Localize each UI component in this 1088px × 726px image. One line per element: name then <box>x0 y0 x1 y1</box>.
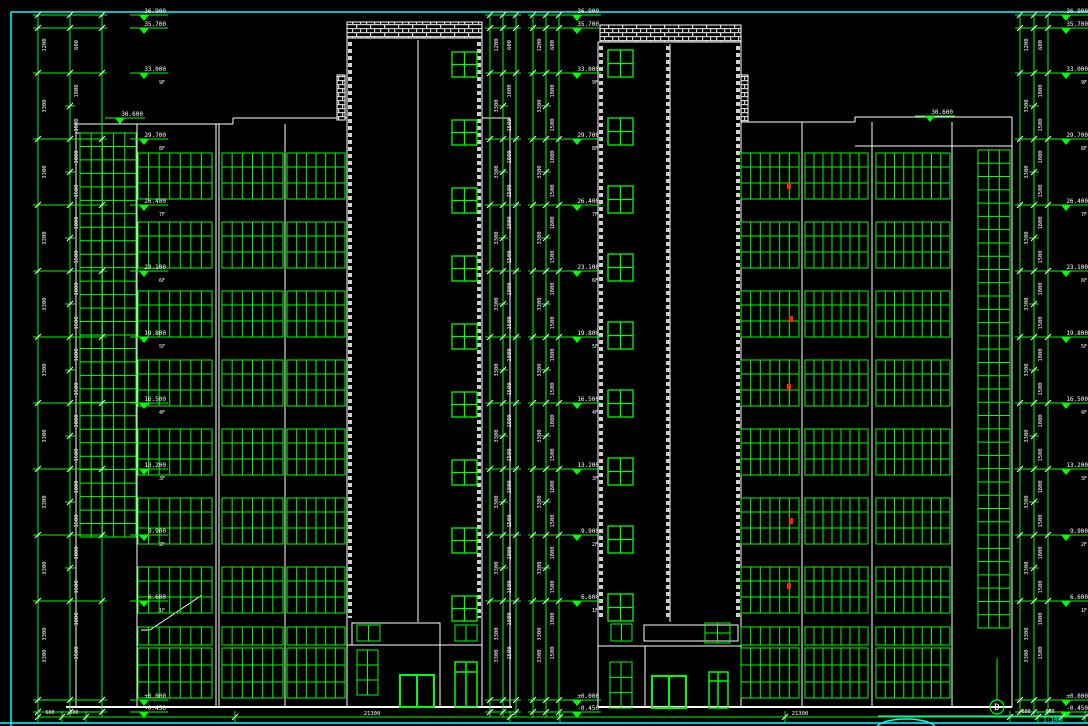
elevation-marker: 16.5004F <box>1052 396 1088 416</box>
svg-text:9F: 9F <box>159 80 165 86</box>
svg-text:9.900: 9.900 <box>581 528 599 535</box>
svg-text:1500: 1500 <box>74 316 80 329</box>
svg-text:1500: 1500 <box>550 448 556 461</box>
svg-text:4F: 4F <box>592 410 598 416</box>
svg-text:1500: 1500 <box>507 316 513 329</box>
svg-text:3300: 3300 <box>1024 649 1030 662</box>
svg-text:21300: 21300 <box>792 711 809 717</box>
svg-text:1800: 1800 <box>507 480 513 493</box>
svg-text:3300: 3300 <box>494 649 500 662</box>
svg-text:1800: 1800 <box>507 150 513 163</box>
dim-string-mid-right: 3300180015003300180015003300180015003300… <box>528 12 564 717</box>
svg-text:3300: 3300 <box>537 649 543 662</box>
svg-text:1200: 1200 <box>1024 38 1030 51</box>
svg-text:23.100: 23.100 <box>577 264 599 271</box>
svg-text:13.200: 13.200 <box>577 462 599 469</box>
svg-text:6.600: 6.600 <box>581 594 599 601</box>
svg-text:1800: 1800 <box>74 216 80 229</box>
elevation-marker: 36.900 <box>1052 8 1088 21</box>
svg-text:1500: 1500 <box>74 580 80 593</box>
svg-text:600: 600 <box>550 40 556 50</box>
elevation-marker: -0.450 <box>563 705 601 718</box>
svg-text:1800: 1800 <box>1038 216 1044 229</box>
scale-note: 1:100 <box>1043 717 1061 724</box>
svg-text:3300: 3300 <box>1024 363 1030 376</box>
elevation-marker: 36.900 <box>563 8 601 21</box>
title-stamp: 1:100 <box>876 717 1061 726</box>
svg-text:2F: 2F <box>159 542 165 548</box>
svg-text:1500: 1500 <box>550 646 556 659</box>
svg-text:1800: 1800 <box>74 282 80 295</box>
left-elevation-windows <box>80 52 477 707</box>
svg-text:3300: 3300 <box>42 649 48 662</box>
svg-text:5F: 5F <box>1081 344 1087 350</box>
svg-text:1500: 1500 <box>550 514 556 527</box>
svg-text:1800: 1800 <box>507 282 513 295</box>
svg-text:1200: 1200 <box>494 38 500 51</box>
svg-text:1800: 1800 <box>1038 612 1044 625</box>
svg-text:1500: 1500 <box>74 184 80 197</box>
elevation-marker: 29.7008F <box>563 132 601 152</box>
svg-text:26.400: 26.400 <box>144 198 166 205</box>
svg-text:±0.000: ±0.000 <box>1066 693 1088 700</box>
grid-bubble-label: D <box>994 703 999 713</box>
svg-text:9.900: 9.900 <box>1070 528 1088 535</box>
svg-text:3300: 3300 <box>494 429 500 442</box>
grid-bubble-d: D <box>990 658 1004 714</box>
svg-text:1800: 1800 <box>1038 480 1044 493</box>
svg-text:600: 600 <box>1038 40 1044 50</box>
svg-text:3300: 3300 <box>42 297 48 310</box>
svg-text:600: 600 <box>74 40 80 50</box>
svg-text:16.500: 16.500 <box>1066 396 1088 403</box>
elevation-marker: 13.2003F <box>563 462 601 482</box>
svg-text:7F: 7F <box>159 212 165 218</box>
svg-text:1500: 1500 <box>1038 448 1044 461</box>
svg-text:16.500: 16.500 <box>577 396 599 403</box>
svg-text:3300: 3300 <box>1024 561 1030 574</box>
left-elevation <box>66 22 512 707</box>
svg-text:36.900: 36.900 <box>1066 8 1088 15</box>
svg-text:3300: 3300 <box>494 495 500 508</box>
sheet-frame <box>0 12 1088 726</box>
svg-text:36.900: 36.900 <box>144 8 166 15</box>
svg-text:23.100: 23.100 <box>144 264 166 271</box>
elevation-marker: 16.5004F <box>563 396 601 416</box>
svg-text:1500: 1500 <box>507 646 513 659</box>
svg-text:3300: 3300 <box>494 627 500 640</box>
elevation-marker: 19.8005F <box>1052 330 1088 350</box>
elevation-marker: 9.9002F <box>563 528 601 548</box>
marker-column-right: 36.90035.70033.0009F29.7008F26.4007F23.1… <box>1052 8 1088 718</box>
svg-text:1500: 1500 <box>1038 316 1044 329</box>
svg-text:1800: 1800 <box>1038 348 1044 361</box>
svg-text:4F: 4F <box>1081 410 1087 416</box>
svg-text:1500: 1500 <box>550 580 556 593</box>
svg-text:1500: 1500 <box>1038 118 1044 131</box>
svg-text:30.600: 30.600 <box>931 109 953 116</box>
svg-text:1800: 1800 <box>1038 84 1044 97</box>
elevation-marker: 35.700 <box>563 21 601 34</box>
svg-text:33.000: 33.000 <box>1066 66 1088 73</box>
svg-text:1500: 1500 <box>74 250 80 263</box>
svg-text:1500: 1500 <box>74 646 80 659</box>
svg-text:3300: 3300 <box>1024 495 1030 508</box>
svg-text:1800: 1800 <box>550 348 556 361</box>
svg-text:13.200: 13.200 <box>1066 462 1088 469</box>
svg-text:6.600: 6.600 <box>148 594 166 601</box>
elevation-marker: 6.6001F <box>1052 594 1088 614</box>
svg-text:±0.000: ±0.000 <box>144 693 166 700</box>
svg-text:1800: 1800 <box>550 546 556 559</box>
dim-string-left: 3300180015003300180015003300180015003300… <box>33 12 107 717</box>
elevation-marker: 33.0009F <box>563 66 601 86</box>
svg-text:1800: 1800 <box>507 348 513 361</box>
svg-text:3300: 3300 <box>42 627 48 640</box>
svg-text:26.400: 26.400 <box>577 198 599 205</box>
svg-text:1500: 1500 <box>1038 580 1044 593</box>
svg-text:1500: 1500 <box>1038 514 1044 527</box>
elevation-marker: 35.700 <box>130 21 168 34</box>
svg-text:6.600: 6.600 <box>1070 594 1088 601</box>
svg-text:1500: 1500 <box>550 316 556 329</box>
svg-text:3F: 3F <box>1081 476 1087 482</box>
svg-text:6F: 6F <box>159 278 165 284</box>
svg-text:1800: 1800 <box>507 414 513 427</box>
svg-text:3300: 3300 <box>1024 429 1030 442</box>
svg-text:1500: 1500 <box>74 382 80 395</box>
svg-text:1800: 1800 <box>507 216 513 229</box>
svg-text:4F: 4F <box>159 410 165 416</box>
svg-text:1800: 1800 <box>550 480 556 493</box>
svg-text:600: 600 <box>507 40 513 50</box>
svg-text:600: 600 <box>1021 709 1030 715</box>
svg-text:3300: 3300 <box>537 231 543 244</box>
svg-text:2F: 2F <box>592 542 598 548</box>
svg-text:1500: 1500 <box>507 118 513 131</box>
svg-text:1500: 1500 <box>550 382 556 395</box>
svg-text:1500: 1500 <box>507 250 513 263</box>
svg-text:9F: 9F <box>1081 80 1087 86</box>
svg-text:3300: 3300 <box>537 627 543 640</box>
svg-text:1500: 1500 <box>507 382 513 395</box>
svg-text:1800: 1800 <box>550 150 556 163</box>
svg-text:1800: 1800 <box>74 150 80 163</box>
svg-text:3300: 3300 <box>494 561 500 574</box>
svg-text:3300: 3300 <box>494 297 500 310</box>
svg-text:6F: 6F <box>1081 278 1087 284</box>
svg-text:1800: 1800 <box>1038 150 1044 163</box>
svg-text:600: 600 <box>1045 709 1054 715</box>
svg-text:3300: 3300 <box>42 495 48 508</box>
svg-text:7F: 7F <box>592 212 598 218</box>
svg-text:±0.000: ±0.000 <box>577 693 599 700</box>
elevation-marker: 29.7008F <box>1052 132 1088 152</box>
svg-text:-0.450: -0.450 <box>577 705 599 712</box>
svg-text:3300: 3300 <box>42 231 48 244</box>
svg-text:1F: 1F <box>592 608 598 614</box>
svg-text:33.000: 33.000 <box>144 66 166 73</box>
svg-text:3300: 3300 <box>42 363 48 376</box>
svg-text:35.700: 35.700 <box>1066 21 1088 28</box>
elevation-marker: 35.700 <box>1052 21 1088 34</box>
svg-text:3300: 3300 <box>1024 165 1030 178</box>
svg-text:1800: 1800 <box>507 546 513 559</box>
svg-text:3300: 3300 <box>537 165 543 178</box>
svg-text:3300: 3300 <box>537 429 543 442</box>
svg-text:1800: 1800 <box>550 84 556 97</box>
svg-text:8F: 8F <box>592 146 598 152</box>
elevation-marker: 23.1006F <box>1052 264 1088 284</box>
svg-text:600: 600 <box>69 710 78 716</box>
svg-text:3300: 3300 <box>42 561 48 574</box>
svg-text:1500: 1500 <box>74 448 80 461</box>
svg-text:19.800: 19.800 <box>1066 330 1088 337</box>
svg-text:1800: 1800 <box>74 84 80 97</box>
svg-text:16.500: 16.500 <box>144 396 166 403</box>
elevation-marker: 33.0009F <box>1052 66 1088 86</box>
svg-text:7F: 7F <box>1081 212 1087 218</box>
svg-text:1500: 1500 <box>1038 382 1044 395</box>
svg-text:29.700: 29.700 <box>144 132 166 139</box>
svg-text:3300: 3300 <box>1024 99 1030 112</box>
svg-text:35.700: 35.700 <box>144 21 166 28</box>
elevation-marker: 23.1006F <box>563 264 601 284</box>
svg-text:36.900: 36.900 <box>577 8 599 15</box>
elevation-marker: 19.8005F <box>563 330 601 350</box>
svg-text:1500: 1500 <box>550 118 556 131</box>
svg-text:1500: 1500 <box>550 184 556 197</box>
cad-sheet: 3300180015003300180015003300180015003300… <box>0 0 1088 726</box>
svg-text:1800: 1800 <box>550 414 556 427</box>
svg-text:1800: 1800 <box>550 216 556 229</box>
svg-text:3300: 3300 <box>537 99 543 112</box>
svg-text:23.100: 23.100 <box>1066 264 1088 271</box>
svg-text:1800: 1800 <box>1038 414 1044 427</box>
svg-text:3F: 3F <box>592 476 598 482</box>
elevation-marker: 13.2003F <box>1052 462 1088 482</box>
svg-text:29.700: 29.700 <box>577 132 599 139</box>
svg-text:5F: 5F <box>159 344 165 350</box>
svg-text:1800: 1800 <box>550 282 556 295</box>
elevation-marker: 33.0009F <box>130 66 168 86</box>
svg-text:9F: 9F <box>592 80 598 86</box>
svg-text:1500: 1500 <box>507 184 513 197</box>
svg-text:1200: 1200 <box>42 38 48 51</box>
svg-text:19.800: 19.800 <box>577 330 599 337</box>
dim-string-right: 3300180015003300180015003300180015003300… <box>1015 12 1053 717</box>
cad-canvas[interactable]: 3300180015003300180015003300180015003300… <box>0 0 1088 726</box>
svg-text:1800: 1800 <box>507 612 513 625</box>
svg-text:2F: 2F <box>1081 542 1087 548</box>
elevation-marker: 26.4007F <box>1052 198 1088 218</box>
svg-text:1200: 1200 <box>537 38 543 51</box>
elevation-marker: 9.9002F <box>1052 528 1088 548</box>
svg-text:19.800: 19.800 <box>144 330 166 337</box>
svg-text:1500: 1500 <box>74 514 80 527</box>
svg-text:8F: 8F <box>159 146 165 152</box>
svg-text:1800: 1800 <box>1038 546 1044 559</box>
svg-text:5F: 5F <box>592 344 598 350</box>
svg-text:13.200: 13.200 <box>144 462 166 469</box>
svg-text:3300: 3300 <box>494 231 500 244</box>
svg-text:3300: 3300 <box>1024 297 1030 310</box>
svg-text:9.900: 9.900 <box>148 528 166 535</box>
svg-text:1800: 1800 <box>74 414 80 427</box>
svg-text:21300: 21300 <box>364 711 381 717</box>
svg-text:30.600: 30.600 <box>121 111 143 118</box>
svg-text:3300: 3300 <box>537 495 543 508</box>
svg-text:1800: 1800 <box>507 84 513 97</box>
elevation-marker: 6.6001F <box>563 594 601 614</box>
svg-text:1500: 1500 <box>1038 184 1044 197</box>
svg-text:3300: 3300 <box>537 363 543 376</box>
svg-text:1500: 1500 <box>507 514 513 527</box>
svg-text:3F: 3F <box>159 476 165 482</box>
svg-text:3300: 3300 <box>42 429 48 442</box>
svg-text:6F: 6F <box>592 278 598 284</box>
svg-text:1500: 1500 <box>550 250 556 263</box>
marker-column-mid: 36.90035.70033.0009F29.7008F26.4007F23.1… <box>563 8 601 718</box>
svg-text:3300: 3300 <box>537 561 543 574</box>
svg-text:1500: 1500 <box>74 118 80 131</box>
svg-text:3300: 3300 <box>42 165 48 178</box>
svg-text:1800: 1800 <box>74 546 80 559</box>
svg-text:600: 600 <box>45 710 54 716</box>
elevation-marker: 36.900 <box>130 8 168 21</box>
svg-text:1500: 1500 <box>507 580 513 593</box>
svg-text:3300: 3300 <box>1024 627 1030 640</box>
svg-text:3300: 3300 <box>494 363 500 376</box>
svg-text:-0.450: -0.450 <box>1066 705 1088 712</box>
svg-text:1800: 1800 <box>74 480 80 493</box>
svg-text:1800: 1800 <box>550 612 556 625</box>
svg-text:29.700: 29.700 <box>1066 132 1088 139</box>
svg-text:3300: 3300 <box>1024 231 1030 244</box>
svg-text:3300: 3300 <box>494 99 500 112</box>
svg-text:8F: 8F <box>1081 146 1087 152</box>
svg-text:1F: 1F <box>159 608 165 614</box>
svg-text:1F: 1F <box>1081 608 1087 614</box>
svg-text:1500: 1500 <box>1038 646 1044 659</box>
svg-text:33.000: 33.000 <box>577 66 599 73</box>
svg-text:35.700: 35.700 <box>577 21 599 28</box>
elevation-marker: 26.4007F <box>563 198 601 218</box>
dim-string-mid-left: 3300180015003300180015003300180015003300… <box>485 12 521 717</box>
svg-text:3300: 3300 <box>537 297 543 310</box>
svg-text:1800: 1800 <box>74 612 80 625</box>
svg-text:1800: 1800 <box>1038 282 1044 295</box>
svg-text:-0.450: -0.450 <box>144 705 166 712</box>
svg-text:1500: 1500 <box>1038 250 1044 263</box>
svg-text:1500: 1500 <box>507 448 513 461</box>
svg-text:3300: 3300 <box>42 99 48 112</box>
svg-text:3300: 3300 <box>494 165 500 178</box>
svg-text:1800: 1800 <box>74 348 80 361</box>
svg-text:26.400: 26.400 <box>1066 198 1088 205</box>
